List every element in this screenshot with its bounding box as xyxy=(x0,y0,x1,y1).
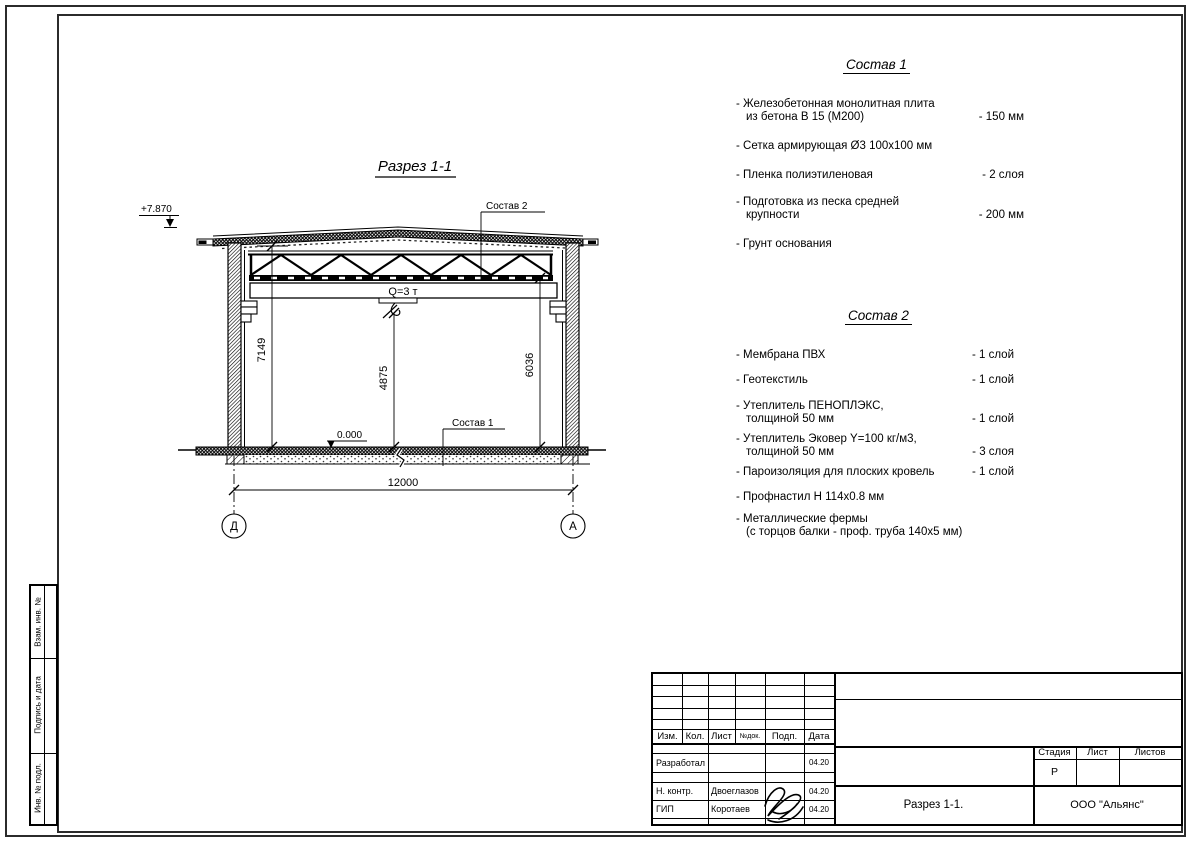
frame-attribute-strip: Взам. инв. № Подпись и дата Инв. № подл. xyxy=(29,584,58,826)
item-value: - 2 слоя xyxy=(932,169,1024,182)
tb-role-razrabotal: Разработал xyxy=(653,753,711,772)
tb-stage-value: Р xyxy=(1033,759,1076,785)
item-value: - 1 слой xyxy=(928,466,1014,479)
tb-role-gip: ГИП xyxy=(653,800,711,818)
list-item: - Железобетонная монолитная плитаиз бето… xyxy=(736,98,1028,124)
strip-label-vzam: Взам. инв. № xyxy=(34,597,43,647)
tb-role-nkontr: Н. контр. xyxy=(653,782,711,800)
tb-sheet-label: Лист xyxy=(1076,746,1119,759)
list-item: - Геотекстиль - 1 слой xyxy=(736,374,1028,387)
list-item: - Профнастил Н 114х0.8 мм xyxy=(736,491,1028,504)
tb-header-podp: Подп. xyxy=(765,729,804,743)
tb-sheets-label: Листов xyxy=(1119,746,1181,759)
tb-header-izm: Изм. xyxy=(653,729,682,743)
tb-header-kol: Кол. xyxy=(682,729,708,743)
list-item: - Грунт основания xyxy=(736,238,1028,251)
tb-stage-label: Стадия xyxy=(1033,746,1076,759)
signature-icon xyxy=(759,776,811,826)
list-item: - Сетка армирующая Ø3 100х100 мм xyxy=(736,140,1028,153)
list-item: - Утеплитель Эковер Y=100 кг/м3,толщиной… xyxy=(736,433,1028,459)
item-value: - 1 слой xyxy=(928,413,1014,426)
list-item: - Утеплитель ПЕНОПЛЭКС,толщиной 50 мм - … xyxy=(736,400,1028,426)
tb-date: 04.20 xyxy=(804,753,834,772)
strip-label-podpis: Подпись и дата xyxy=(34,676,43,734)
item-value: - 1 слой xyxy=(928,374,1014,387)
strip-label-inv: Инв. № подл. xyxy=(34,763,43,813)
tb-company: ООО "Альянс" xyxy=(1033,785,1181,824)
composition-2-heading: Состав 2 xyxy=(845,308,912,325)
drawing-sheet: Разрез 1-1 xyxy=(0,0,1191,842)
list-item: - Пленка полиэтиленовая - 2 слоя xyxy=(736,169,1028,182)
tb-header-list: Лист xyxy=(708,729,735,743)
list-item: - Мембрана ПВХ - 1 слой xyxy=(736,349,1028,362)
list-item: - Подготовка из песка среднейкрупности -… xyxy=(736,196,1028,222)
list-item: - Металлические фермы(с торцов балки - п… xyxy=(736,513,1028,539)
list-item: - Пароизоляция для плоских кровель - 1 с… xyxy=(736,466,1028,479)
item-value: - 150 мм xyxy=(932,111,1024,124)
tb-header-ndok: №док. xyxy=(735,729,765,743)
tb-header-data: Дата xyxy=(804,729,834,743)
composition-1-heading: Состав 1 xyxy=(843,57,910,74)
tb-doc-title: Разрез 1-1. xyxy=(834,785,1033,824)
item-value: - 3 слоя xyxy=(928,446,1014,459)
title-block: Изм. Кол. Лист №док. Подп. Дата Разработ… xyxy=(651,672,1183,826)
item-value: - 200 мм xyxy=(932,209,1024,222)
item-value: - 1 слой xyxy=(928,349,1014,362)
